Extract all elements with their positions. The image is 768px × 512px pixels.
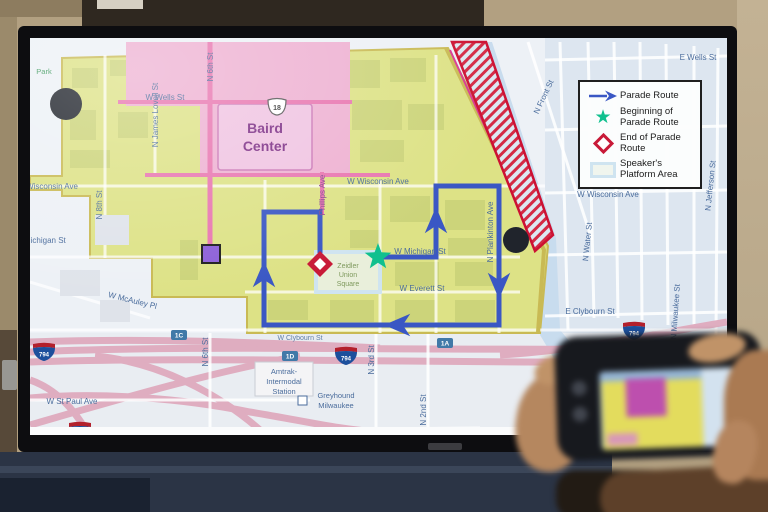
legend-row-platform: Speaker's Platform Area — [586, 159, 694, 181]
label-amtrak-line3: Station — [272, 387, 295, 396]
label-baird-line2: Center — [243, 138, 288, 154]
exit-tab-1a: 1A — [441, 341, 450, 348]
svg-text:18: 18 — [273, 105, 281, 112]
label-e-wells: E Wells St — [680, 53, 718, 62]
label-wisconsin-center: W Wisconsin Ave — [347, 177, 409, 186]
label-n-6th-top: N 6th St — [206, 52, 215, 82]
label-amtrak-line1: Amtrak- — [271, 367, 298, 376]
parade-route-arrow-icon — [586, 89, 620, 103]
door-hinge — [2, 360, 17, 390]
start-star-icon: ★ — [594, 111, 611, 125]
black-dot-marker-left — [50, 88, 82, 120]
map-legend: Parade Route ★ Beginning of Parade Route… — [578, 80, 702, 189]
label-zeidler-line2: Union — [339, 272, 357, 279]
label-n-6th-bottom: N 6th St — [201, 337, 210, 367]
label-wisconsin-right: W Wisconsin Ave — [577, 190, 639, 199]
end-diamond-icon — [592, 133, 613, 154]
tv-ir-sensor — [428, 443, 462, 450]
doorframe-shadow — [0, 330, 17, 462]
label-zeidler-line1: Zeidler — [337, 263, 359, 270]
legend-row-beginning: ★ Beginning of Parade Route — [586, 107, 694, 129]
label-michigan-left: W Michigan St — [30, 236, 67, 245]
ceiling-patch — [97, 0, 143, 9]
label-plankinton: N Plankinton Ave — [486, 201, 495, 262]
couch-shadow — [0, 478, 150, 512]
label-wisconsin-left: Wisconsin Ave — [30, 182, 78, 191]
black-dot-marker-right — [503, 227, 529, 253]
label-michigan-center: W Michigan St — [394, 247, 446, 256]
label-park: Park — [36, 67, 52, 76]
label-n-8th: N 8th St — [95, 190, 104, 220]
couch-cushion-ridge — [0, 466, 612, 473]
doorframe-top-left — [0, 0, 82, 17]
wall — [737, 0, 768, 512]
label-greyhound-line2: Milwaukee — [318, 401, 353, 410]
legend-label: Beginning of Parade Route — [620, 107, 694, 129]
screen-bottom-margin — [30, 427, 727, 435]
photo-of-tv-scene: E Wells St W Wells St Wisconsin Ave W Wi… — [0, 0, 768, 512]
label-n-2nd: N 2nd St — [419, 394, 428, 426]
label-baird-line1: Baird — [247, 120, 283, 136]
svg-text:794: 794 — [39, 353, 50, 359]
label-st-paul: W St Paul Ave — [47, 397, 99, 406]
exit-tab-1c: 1C — [175, 333, 184, 340]
label-greyhound-line1: Greyhound — [317, 391, 354, 400]
svg-text:794: 794 — [629, 332, 640, 338]
label-zeidler-line3: Square — [337, 281, 360, 288]
legend-label: End of Parade Route — [620, 133, 694, 155]
purple-square-marker — [202, 245, 220, 263]
label-james-lovell: N James Lovell St — [151, 82, 160, 147]
label-everett: W Everett St — [400, 284, 446, 293]
platform-area-icon — [590, 162, 616, 178]
label-amtrak-line2: Intermodal — [266, 377, 302, 386]
label-w-clybourn: W Clybourn St — [277, 335, 322, 342]
legend-label: Parade Route — [620, 91, 679, 102]
baird-center-building — [218, 104, 312, 170]
label-phillips: Phillips Ave — [318, 174, 327, 215]
label-n-3rd: N 3rd St — [367, 345, 376, 375]
bus-station-icon — [298, 396, 307, 405]
exit-tab-1d: 1D — [286, 354, 295, 361]
label-e-clybourn: E Clybourn St — [565, 307, 615, 316]
legend-row-end: End of Parade Route — [586, 133, 694, 155]
legend-row-parade-route: Parade Route — [586, 89, 694, 103]
legend-label: Speaker's Platform Area — [620, 159, 694, 181]
svg-text:794: 794 — [341, 357, 352, 363]
